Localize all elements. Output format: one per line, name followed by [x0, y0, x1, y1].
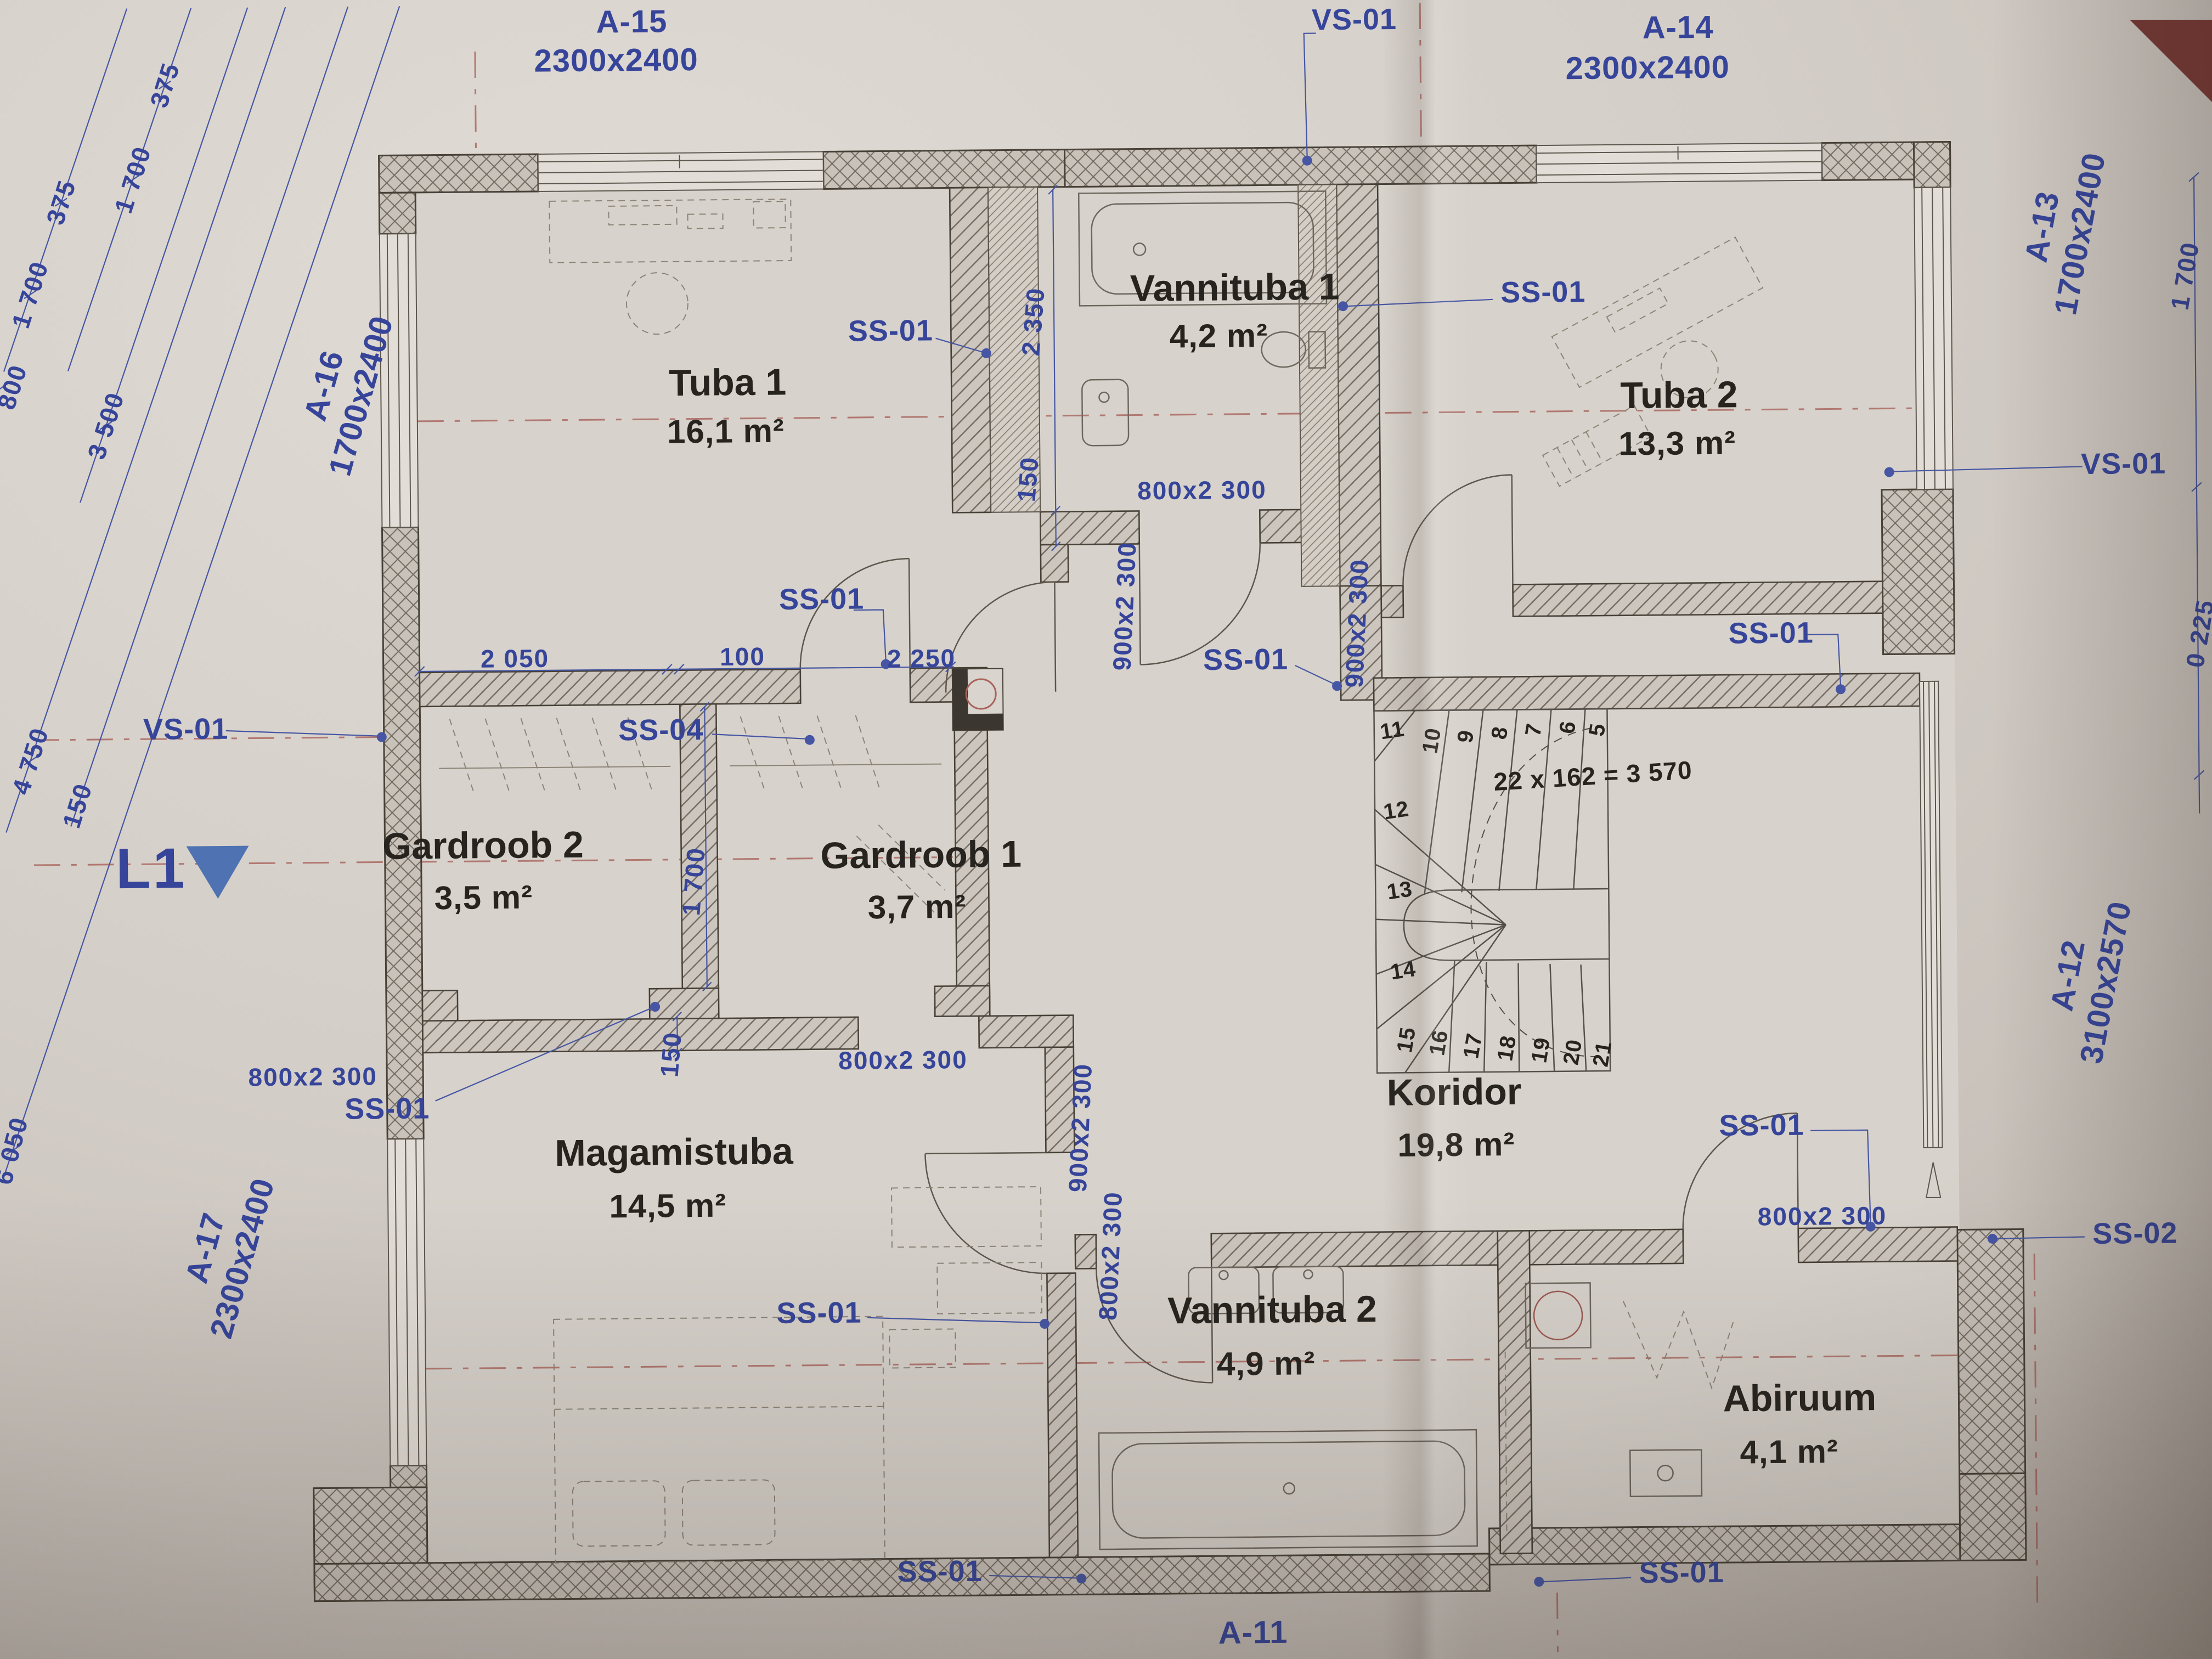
floor-plan-drawing: [0, 0, 2212, 1659]
level-marker-triangle: [187, 846, 250, 899]
wall-tag-ss02: SS-02: [2092, 1218, 2178, 1250]
room-area-magamistuba: 14,5 m²: [609, 1188, 726, 1224]
door-size-label: 900x2 300: [1064, 1063, 1097, 1193]
stair-step-number: 14: [1389, 957, 1417, 984]
stair-step-number: 11: [1379, 717, 1406, 743]
stair-step-number: 16: [1425, 1028, 1452, 1057]
room-name-vannituba1: Vannituba 1: [1130, 268, 1340, 309]
dimension-label: 100: [720, 643, 765, 670]
wall-tag-ss01: SS-01: [1203, 644, 1289, 676]
stair-step-number: 15: [1393, 1025, 1420, 1054]
window-tag-a15: A-15: [596, 5, 667, 39]
room-name-koridor: Koridor: [1386, 1073, 1521, 1113]
window-tag-a14: A-14: [1642, 11, 1713, 45]
door-size-label: 800x2 300: [838, 1046, 968, 1074]
dimension-label: 2 050: [481, 645, 550, 672]
door-size-label: 800x2 300: [1094, 1190, 1127, 1321]
door-size-label: 900x2 300: [1109, 541, 1141, 671]
door-size-label: 800x2 300: [1758, 1202, 1887, 1229]
room-name-abiruum: Abiruum: [1723, 1378, 1876, 1419]
room-name-tuba2: Tuba 2: [1620, 375, 1738, 415]
chimney-block: [952, 669, 1003, 731]
door-size-label: 800x2 300: [248, 1063, 377, 1090]
room-name-tuba1: Tuba 1: [669, 363, 787, 403]
stair-step-number: 18: [1493, 1034, 1520, 1063]
room-name-vannituba2: Vannituba 2: [1167, 1290, 1377, 1331]
wall-tag-ss01: SS-01: [1719, 1110, 1804, 1142]
room-area-vannituba2: 4,9 m²: [1217, 1346, 1316, 1381]
room-area-abiruum: 4,1 m²: [1740, 1434, 1838, 1470]
wall-tag-ss01: SS-01: [1500, 276, 1586, 308]
wall-tag-vs01-left: VS-01: [143, 714, 229, 746]
room-area-gardroob2: 3,5 m²: [434, 880, 533, 916]
stair-step-number: 17: [1459, 1031, 1486, 1060]
dimension-label: 150: [656, 1031, 686, 1078]
room-area-vannituba1: 4,2 m²: [1169, 318, 1268, 354]
dimension-label: 150: [1013, 455, 1043, 503]
wall-tag-ss01: SS-01: [897, 1556, 983, 1588]
blueprint-photo: A-15 2300x2400 VS-01 A-14 2300x2400 A-16…: [0, 0, 2212, 1659]
stair-step-number: 19: [1527, 1036, 1554, 1065]
door-size-label: 900x2 300: [1341, 558, 1373, 688]
room-name-gardroob1: Gardroob 1: [820, 835, 1022, 876]
window-size-a15: 2300x2400: [534, 43, 698, 78]
wall-tag-ss01: SS-01: [1639, 1557, 1724, 1589]
window-size-a14: 2300x2400: [1565, 51, 1730, 86]
wall-tag-ss01: SS-01: [848, 315, 934, 347]
stair-step-number: 13: [1385, 877, 1414, 904]
window-tag-a11: A-11: [1218, 1616, 1288, 1650]
stair-step-number: 12: [1382, 797, 1410, 823]
door-size-label: 800x2 300: [1137, 476, 1267, 504]
dimension-label: 1 700: [678, 846, 709, 917]
stair-step-number: 21: [1589, 1040, 1616, 1069]
level-marker-label: L1: [116, 839, 187, 899]
wall-tag-ss01: SS-01: [1728, 617, 1814, 649]
wall-tag-ss01: SS-01: [776, 1297, 862, 1329]
wall-tag-ss01: SS-01: [345, 1093, 430, 1125]
wall-tag-vs01-top: VS-01: [1312, 4, 1397, 36]
floor-plan: A-15 2300x2400 VS-01 A-14 2300x2400 A-16…: [0, 0, 2212, 1659]
room-area-koridor: 19,8 m²: [1397, 1127, 1515, 1163]
wall-tag-vs01-right: VS-01: [2081, 448, 2166, 480]
room-area-gardroob1: 3,7 m²: [868, 889, 967, 925]
dimension-label: 2 350: [1017, 286, 1049, 357]
room-area-tuba1: 16,1 m²: [667, 414, 785, 449]
room-area-tuba2: 13,3 m²: [1618, 425, 1736, 461]
stair-step-number: 10: [1418, 726, 1445, 755]
dimension-label: 2 250: [887, 645, 956, 672]
room-name-magamistuba: Magamistuba: [555, 1132, 793, 1173]
wall-tag-ss04: SS-04: [618, 714, 704, 746]
stair-step-number: 20: [1559, 1037, 1586, 1066]
room-name-gardroob2: Gardroob 2: [382, 826, 584, 867]
wall-tag-ss01: SS-01: [779, 583, 865, 615]
